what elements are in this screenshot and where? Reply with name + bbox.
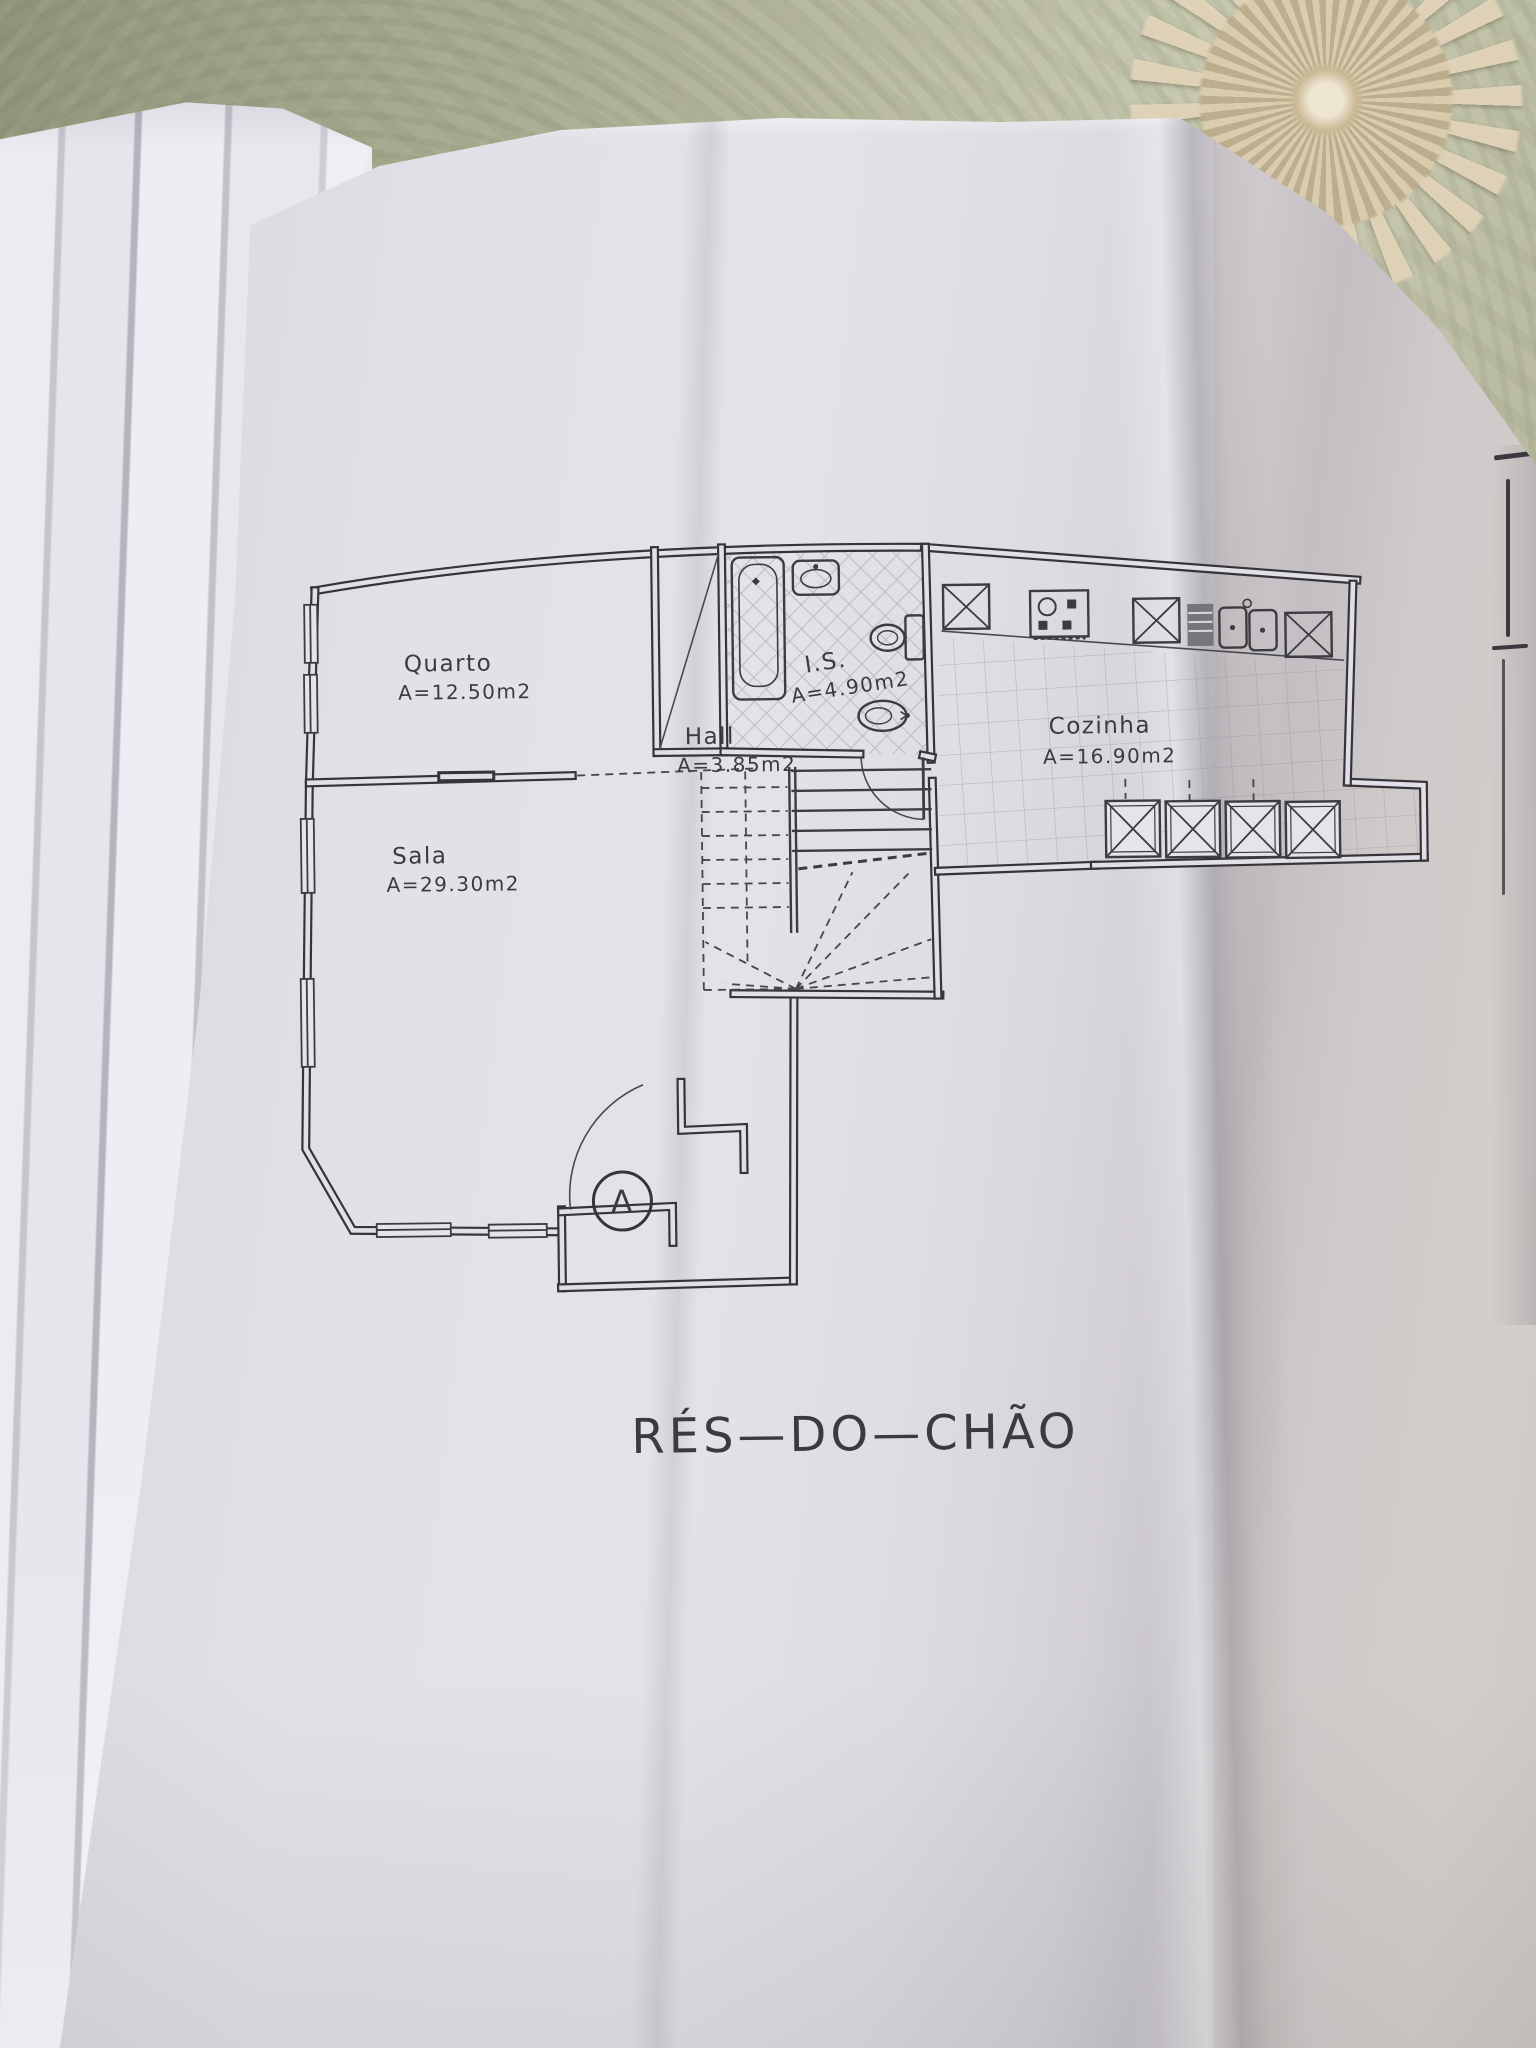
appliance-box: [1106, 800, 1161, 857]
floor-plan-title: RÉS—DO—CHÃO: [631, 1402, 1080, 1464]
appliance-box: [1286, 801, 1341, 858]
stove: [1030, 590, 1089, 639]
window: [301, 979, 315, 1067]
window: [377, 1223, 451, 1237]
appliance-box: [1226, 801, 1281, 858]
photo-of-floor-plan-page: A Quarto A=12.50m2 Sala A=29.30m2 Hall A…: [0, 0, 1536, 2048]
room-label-sala-name: Sala: [392, 843, 448, 870]
adjacent-sheet: [1490, 445, 1536, 1325]
window: [489, 1224, 547, 1238]
drainer: [1187, 604, 1214, 646]
wardrobe-diagonal: [658, 554, 721, 749]
room-label-sala-area: A=29.30m2: [386, 871, 520, 897]
room-label-cozinha-name: Cozinha: [1049, 713, 1152, 740]
room-label-quarto-area: A=12.50m2: [398, 679, 532, 705]
appliance-box: [943, 585, 990, 630]
room-label-hall-area: A=3.85m2: [677, 752, 796, 777]
appliance-box: [1285, 612, 1332, 657]
adjacent-sheet-line: [1502, 659, 1505, 895]
adjacent-sheet-shading: [1490, 445, 1536, 1325]
window: [301, 819, 315, 893]
kitchen-sink: [1219, 599, 1277, 651]
appliance-box: [1133, 598, 1180, 643]
room-label-quarto-name: Quarto: [404, 651, 493, 678]
floor-plan-drawing: A Quarto A=12.50m2 Sala A=29.30m2 Hall A…: [284, 513, 1456, 1487]
window: [304, 605, 318, 663]
doily-center-dot: [1285, 62, 1366, 138]
room-label-hall-name: Hall: [685, 724, 735, 751]
window: [304, 675, 318, 733]
section-marker-letter: A: [611, 1183, 635, 1221]
page-bottom-shading: [0, 1679, 1536, 2048]
stairs: [701, 765, 934, 992]
adjacent-sheet-line: [1506, 479, 1510, 637]
appliance-box: [1166, 801, 1221, 858]
room-label-cozinha-area: A=16.90m2: [1043, 743, 1177, 769]
quarto-door-leaf: [437, 771, 495, 783]
